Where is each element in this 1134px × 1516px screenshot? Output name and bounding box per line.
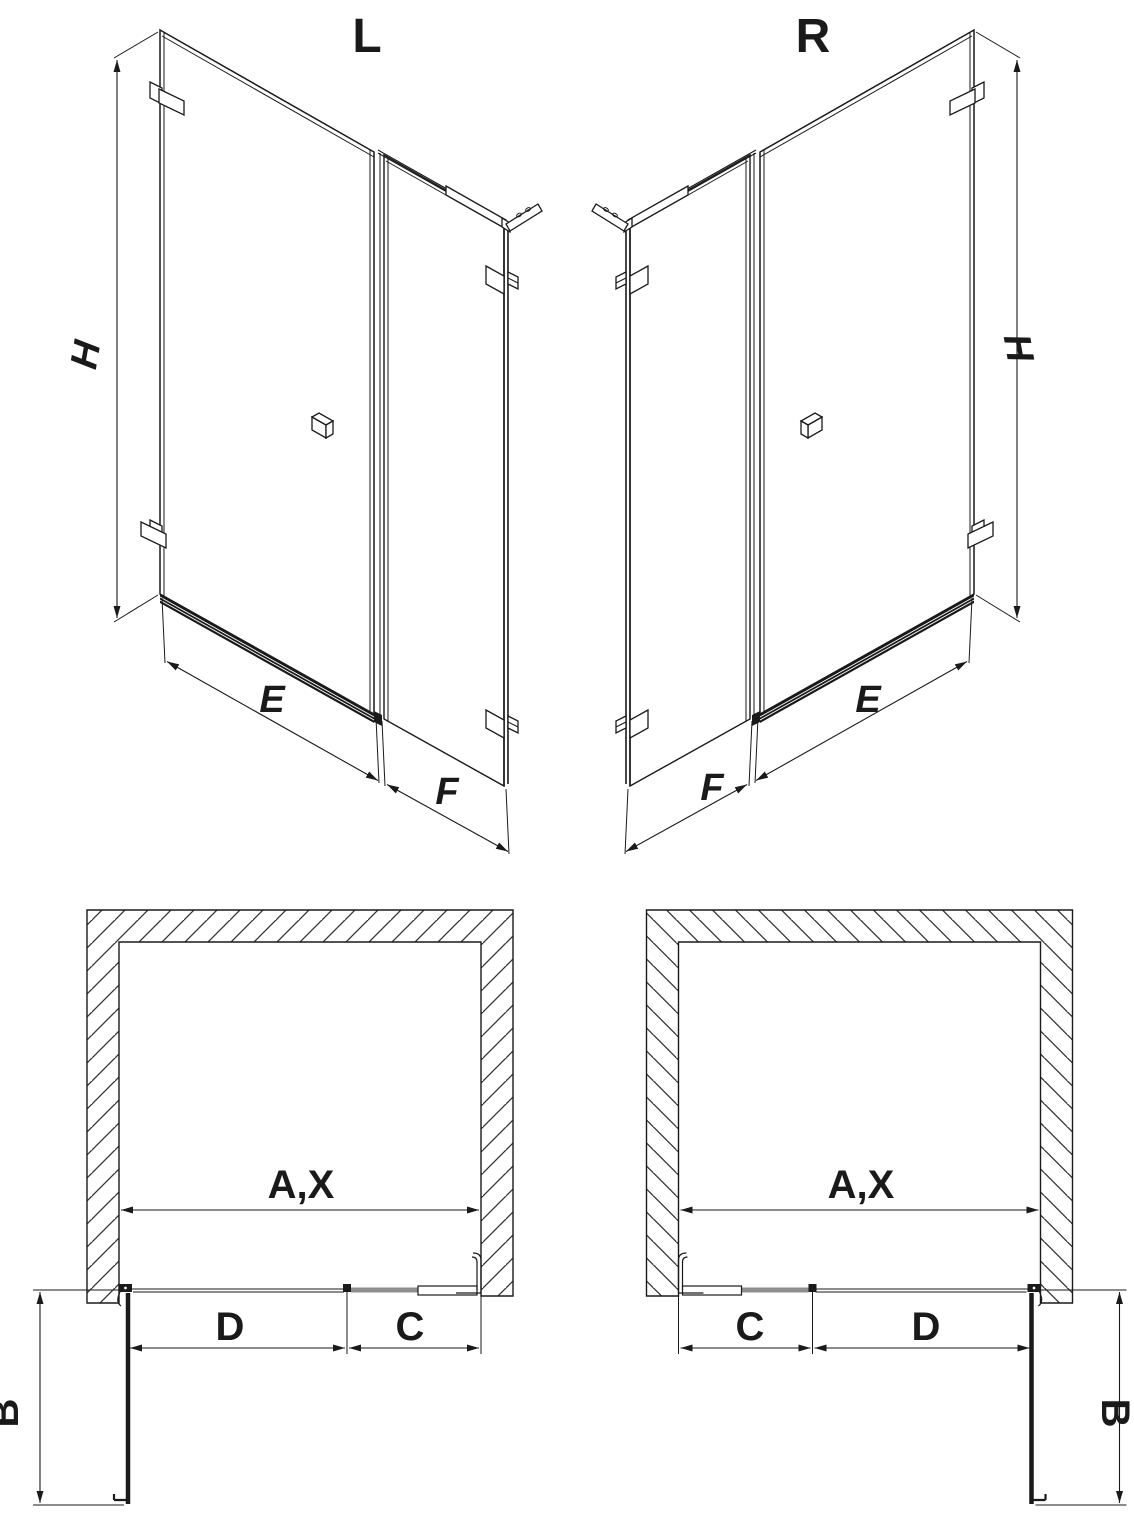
plan-right-swing-label: B — [1093, 1399, 1134, 1428]
swing-extension-lines — [33, 1290, 124, 1505]
plan-left-swing-label: B — [0, 1399, 27, 1428]
plan-left-door-label: D — [216, 1305, 245, 1349]
shower-door-technical-drawing: L R H E F H E F A,X D C B A,X C D B — [0, 0, 1134, 1516]
door-glass-pane — [160, 30, 374, 714]
variant-title-right: R — [796, 10, 831, 63]
hinge-pin — [124, 1286, 128, 1290]
variant-title-left: L — [352, 10, 381, 63]
plan-left-panel-label: C — [396, 1305, 425, 1349]
iso-right-height-label: H — [995, 331, 1041, 367]
drawing-canvas: L R H E F H E F A,X D C B A,X C D B — [0, 0, 1134, 1516]
wall-profile-post — [504, 223, 508, 786]
door-handle-plan — [114, 1494, 126, 1500]
iso-left-panel-width-label: F — [435, 771, 460, 813]
iso-right-door-width-label: E — [855, 679, 882, 721]
plan-right-door-label: D — [912, 1305, 941, 1349]
divider-profile — [343, 1284, 351, 1292]
fixed-panel-glass — [384, 155, 504, 786]
isometric-view-geometry — [114, 30, 542, 854]
plan-left-opening-label: A,X — [268, 1163, 335, 1207]
support-bar-plan — [418, 1286, 477, 1295]
door-closed-line — [131, 1289, 344, 1292]
iso-left-door-width-label: E — [259, 679, 286, 721]
threshold-end-cap — [374, 711, 382, 726]
plan-right-panel-label: C — [736, 1305, 765, 1349]
plan-view-right-mirror — [647, 910, 1127, 1505]
isometric-view-right-mirror — [592, 30, 1020, 854]
plan-right-opening-label: A,X — [828, 1163, 895, 1207]
iso-right-panel-width-label: F — [700, 767, 725, 809]
iso-left-height-label: H — [63, 336, 109, 372]
wall-mount-bracket — [506, 204, 542, 231]
niche-walls-hatched — [87, 910, 513, 1303]
plan-view-geometry — [33, 910, 513, 1505]
